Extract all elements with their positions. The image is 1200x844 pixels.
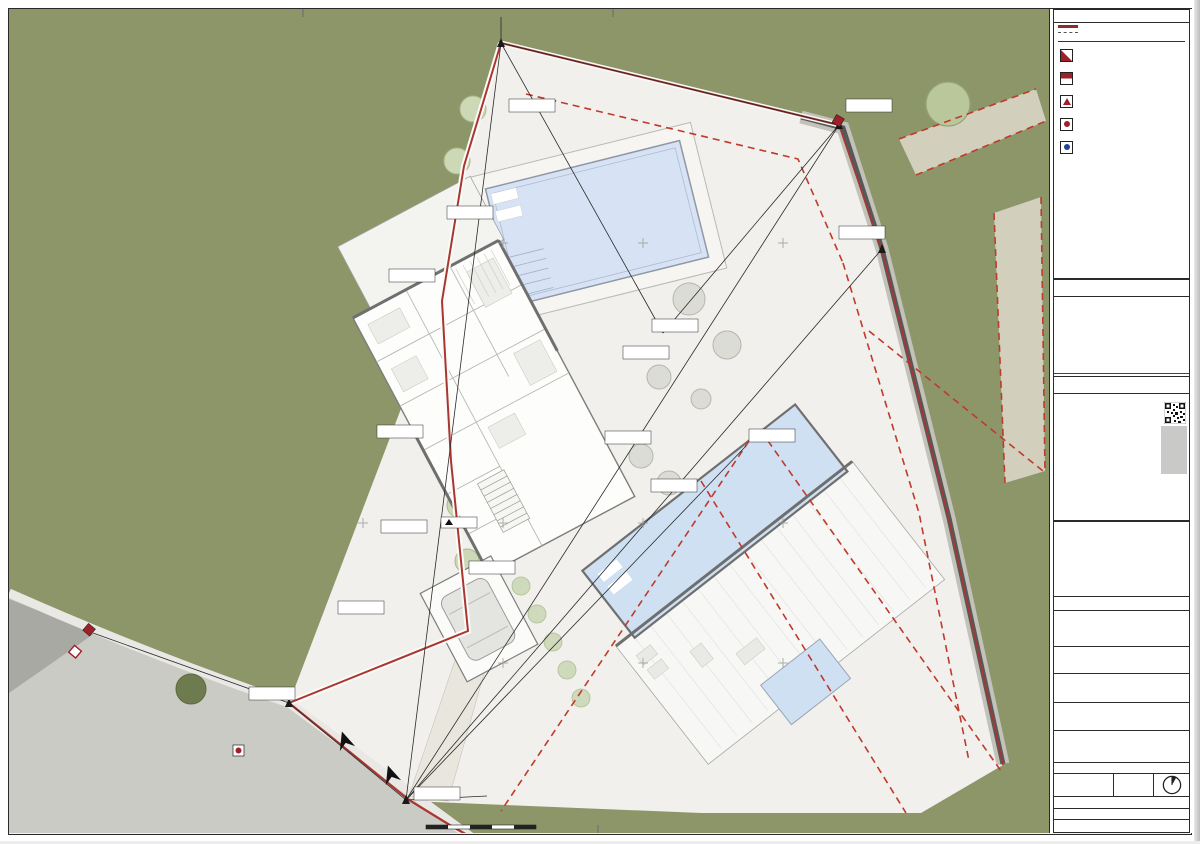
parcel-line-swatch [1058, 25, 1078, 28]
promotor-label [1054, 647, 1189, 648]
escala-cell [1114, 774, 1155, 796]
qr-code [1164, 402, 1186, 424]
fecales-pozo-icon [233, 745, 244, 756]
situacion-label [1054, 703, 1189, 704]
promotor-box [1053, 646, 1190, 674]
elevation-marker [441, 517, 477, 528]
legend-box [1053, 22, 1190, 279]
titleblock-header [1053, 9, 1190, 23]
tree-dark [176, 674, 206, 704]
agua-arqueta-icon [1060, 95, 1073, 108]
setback-line-swatch [1058, 32, 1078, 33]
code-row [1053, 773, 1190, 797]
legend-item [1054, 44, 1189, 67]
modificaciones-box [1053, 296, 1190, 377]
titulo-box [1053, 673, 1190, 703]
electric-arqueta-icon [1060, 49, 1073, 62]
situacion-box [1053, 702, 1190, 731]
site-plan [9, 9, 1050, 833]
legend-item [1054, 136, 1189, 159]
pluviales-pozo-icon [1060, 141, 1073, 154]
partner-1 [1054, 597, 1122, 610]
sheet-frame [8, 8, 1192, 835]
stage-label [1053, 376, 1190, 394]
titulo-label [1054, 674, 1189, 675]
plano-box [1053, 730, 1190, 763]
notes-heading [1054, 394, 1189, 395]
tree-top-right [926, 82, 970, 126]
scan-edge-shadow [1194, 0, 1200, 844]
codigo-box [1053, 819, 1190, 833]
north-arrow-icon [1162, 775, 1182, 795]
modificaciones-heading [1054, 297, 1189, 298]
notes-shaded-column [1161, 426, 1187, 474]
subplano-title [1054, 763, 1189, 766]
legend-item [1054, 67, 1189, 90]
legend-item [1054, 90, 1189, 113]
notes-box [1053, 393, 1190, 521]
ref-catastral [1053, 279, 1190, 297]
north-cell [1154, 774, 1189, 796]
site-plan-svg [9, 9, 1050, 833]
title-block [1050, 9, 1193, 833]
plano-label [1054, 731, 1058, 732]
office-web-row [1054, 611, 1189, 612]
infra-legend-heading [1054, 35, 1189, 40]
sheet-code [1054, 774, 1114, 796]
escala-label [1114, 774, 1154, 775]
telefonia-arqueta-icon [1060, 72, 1073, 85]
fecales-pozo-icon [1060, 118, 1073, 131]
partner-2 [1122, 597, 1190, 610]
firm-box [1053, 521, 1190, 597]
offices-box [1053, 610, 1190, 647]
partners-box [1053, 596, 1190, 611]
drawing-sheet [0, 0, 1200, 844]
scale-bar [426, 825, 536, 829]
divider [1058, 41, 1185, 42]
leyenda-label [1054, 10, 1189, 11]
legend-item [1054, 113, 1189, 136]
